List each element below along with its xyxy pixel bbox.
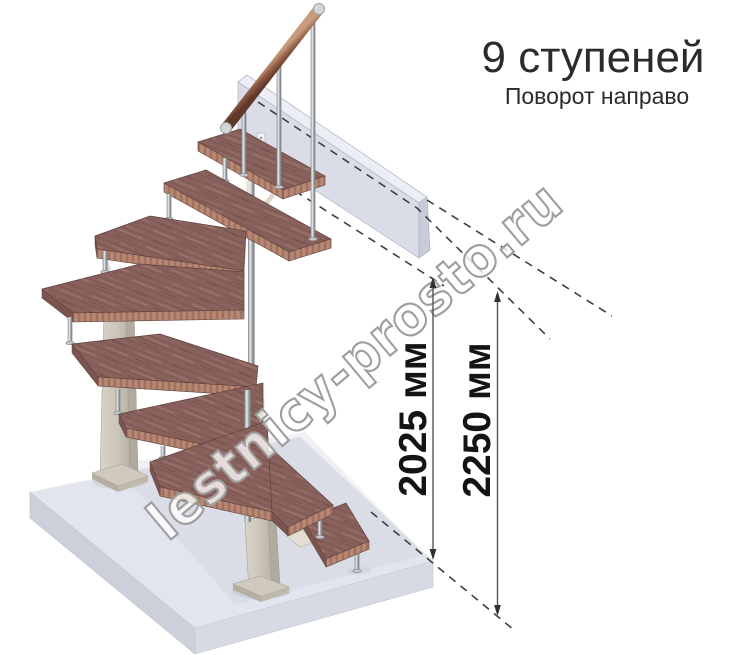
- dimension-2250: 2250 мм: [456, 291, 501, 616]
- support-rod: [167, 194, 172, 219]
- support-rod: [116, 389, 121, 413]
- handrail-end-cap: [221, 123, 232, 134]
- support-rod: [68, 317, 73, 343]
- beam-end-face: [419, 197, 430, 258]
- baluster: [311, 14, 316, 239]
- bracket-hole: [260, 137, 262, 139]
- support-rod: [223, 158, 228, 181]
- dimension-label-2250: 2250 мм: [456, 342, 499, 497]
- screenshot-root: lestnicy-prosto.ru 2025 мм 2250 мм 9 сту…: [0, 0, 744, 655]
- staircase-illustration: lestnicy-prosto.ru 2025 мм 2250 мм 9 сту…: [0, 0, 744, 655]
- page-title: 9 ступеней: [482, 33, 705, 82]
- baluster: [277, 60, 282, 187]
- title-block: 9 ступеней Поворот направо: [482, 33, 705, 109]
- dimension-label-2025: 2025 мм: [392, 341, 435, 496]
- page-subtitle: Поворот направо: [505, 83, 689, 109]
- support-rod: [103, 251, 108, 272]
- step-6: [42, 264, 244, 322]
- handrail-end-cap: [314, 4, 325, 15]
- step-5: [72, 334, 258, 396]
